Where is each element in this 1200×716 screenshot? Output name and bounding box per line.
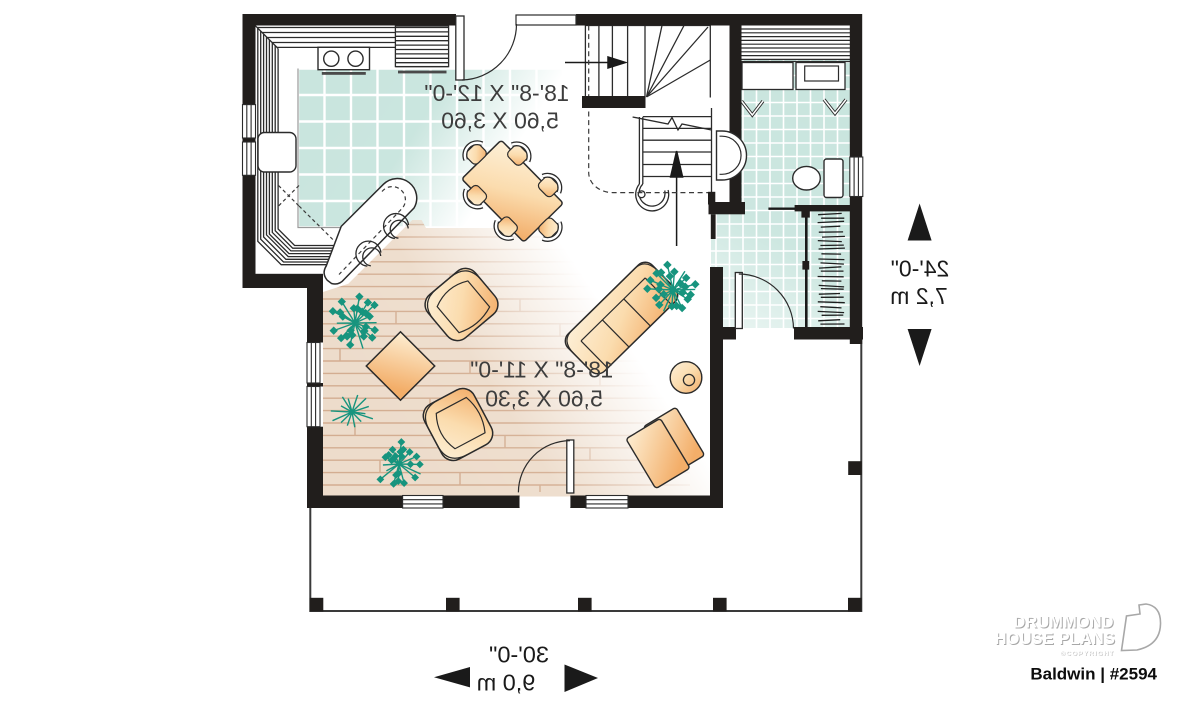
- svg-text:5,60 X 3,30: 5,60 X 3,30: [485, 386, 603, 412]
- svg-text:Baldwin | #2594: Baldwin | #2594: [1030, 665, 1157, 684]
- svg-text:HOUSE PLANS: HOUSE PLANS: [995, 630, 1115, 648]
- svg-text:7,2 m: 7,2 m: [890, 283, 948, 309]
- svg-text:18'-8" X 12'-0": 18'-8" X 12'-0": [424, 80, 569, 106]
- svg-text:18'-8" X 11'-0": 18'-8" X 11'-0": [470, 357, 614, 383]
- svg-text:30'-0": 30'-0": [489, 642, 549, 668]
- svg-text:DRUMMOND: DRUMMOND: [1014, 614, 1114, 632]
- svg-text:24'-0": 24'-0": [891, 256, 950, 282]
- svg-text:5,60 X 3,60: 5,60 X 3,60: [441, 108, 559, 134]
- svg-text:9,0 m: 9,0 m: [477, 670, 536, 696]
- svg-text:©COPYRIGHT: ©COPYRIGHT: [1060, 649, 1113, 657]
